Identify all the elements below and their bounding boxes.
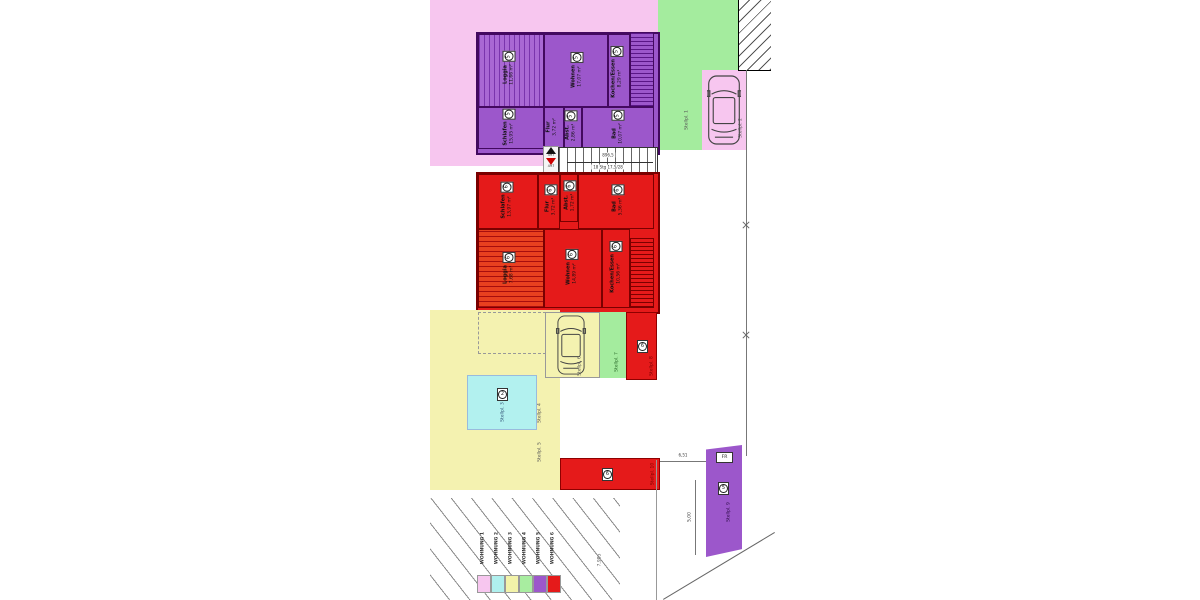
unit-number-badge: 5 xyxy=(611,46,624,57)
unit-number-badge: 5 xyxy=(565,111,578,122)
legend-label-5: WOHNUNG 5 xyxy=(537,532,542,564)
level-down-value: 497 xyxy=(544,165,558,169)
unit-number-badge: 5 xyxy=(612,110,625,121)
stair-steps-label: 18 Stg 17,5/28 xyxy=(591,165,625,170)
label-w5-schlafen: Schlafen15,95 m² 5 xyxy=(503,108,516,145)
car-icon xyxy=(553,314,589,376)
staircase: 896,5 18 Stg 17,5/28 xyxy=(558,147,658,174)
car-icon xyxy=(707,73,741,147)
unit-number-badge: 6 xyxy=(503,252,516,263)
fr-marker: FR xyxy=(716,452,733,463)
label-w5-bad: Bad10,07 m² 5 xyxy=(612,110,625,144)
label-w5-abst: Abst.2,86 m² 5 xyxy=(565,111,578,142)
legend-swatch-5 xyxy=(533,575,547,593)
unit-number-badge: 5 xyxy=(503,108,516,119)
roof-outline-dashed xyxy=(478,312,546,354)
dimension-value-h: 6,51 xyxy=(679,453,688,458)
stall-9-label: Stellpl. 9 xyxy=(727,502,732,522)
label-w6-kochen: Kochen/Essen10,56 m² 6 xyxy=(610,241,623,293)
boundary-tick xyxy=(740,219,753,232)
boundary-line-bottom-center xyxy=(656,460,657,600)
unit-number-badge: 6 xyxy=(602,468,613,481)
legend-swatch-6 xyxy=(547,575,561,593)
stall-8-label: Stellpl. 8 xyxy=(650,356,655,376)
room-w5-balkon xyxy=(630,32,654,107)
legend-label-6: WOHNUNG 6 xyxy=(551,532,556,564)
room-w6-balkon xyxy=(630,238,654,308)
unit-number-badge: 6 xyxy=(566,249,579,260)
label-w5-wohnen: Wohnen17,07 m² 5 xyxy=(571,52,584,88)
label-w6-abst: Abst.1,72 m² 6 xyxy=(564,181,577,212)
stall-2-label: Stellpl. 2 xyxy=(739,118,744,138)
label-w5-loggia: Loggia11,66 m² 5 xyxy=(503,51,516,85)
stall-1-label: Stellpl. 1 xyxy=(685,110,690,130)
ground-green-column xyxy=(658,70,702,150)
label-w6-loggia: Loggia7,68 m² 6 xyxy=(503,252,516,284)
unit-number-badge: 5 xyxy=(718,482,729,495)
label-w6-flur: Flur3,72 m² 6 xyxy=(545,185,558,216)
boundary-line-right xyxy=(746,70,747,456)
label-w6-wohnen: Wohnen14,89 m² 6 xyxy=(566,249,579,285)
legend-swatch-2 xyxy=(491,575,505,593)
stair-dimension-line xyxy=(567,162,653,163)
unit-number-badge: 6 xyxy=(612,185,625,196)
legend-swatch-3 xyxy=(505,575,519,593)
legend-label-1: WOHNUNG 1 xyxy=(481,532,486,564)
label-w5-flur: Flur3,72 m² xyxy=(547,118,558,136)
stall-3-label: Stellpl. 3 xyxy=(501,402,506,422)
unit-number-badge: 6 xyxy=(610,241,623,252)
stall-10-label: Stellpl. 10 xyxy=(651,463,656,486)
legend-label-4: WOHNUNG 4 xyxy=(523,532,528,564)
site-plan-canvas: Stellpl. 1 Stellpl. 2 Loggia11,66 m² 5 W… xyxy=(0,0,1200,600)
legend-swatch-1 xyxy=(477,575,491,593)
unit-number-badge: 6 xyxy=(637,340,648,353)
unit-number-badge: 6 xyxy=(501,181,514,192)
unit-number-badge: 5 xyxy=(571,52,584,63)
legend-swatch-4 xyxy=(519,575,533,593)
stall-6-label: Stellpl. 6 xyxy=(578,356,583,376)
parking-stall-7-green xyxy=(600,312,626,378)
unit-number-badge: 6 xyxy=(564,181,577,192)
stall-4-label: Stellpl. 4 xyxy=(538,403,543,423)
dimension-line-h xyxy=(660,461,706,462)
legend-label-2: WOHNUNG 2 xyxy=(495,532,500,564)
boundary-tick xyxy=(740,329,753,342)
unit-number-badge: 2 xyxy=(497,388,508,401)
label-w5-kochen: Kochen/Essen8,29 m² 5 xyxy=(611,46,624,98)
existing-building-hatch xyxy=(738,0,771,71)
dimension-line-v xyxy=(695,480,696,555)
dimension-value-v: 5,00 xyxy=(688,512,693,522)
unit-number-badge: 5 xyxy=(503,51,516,62)
unit-number-badge: 6 xyxy=(545,185,558,196)
legend-label-3: WOHNUNG 3 xyxy=(509,532,514,564)
stall-5-label: Stellpl. 5 xyxy=(538,442,543,462)
label-w6-schlafen: Schlafen13,97 m² 6 xyxy=(501,181,514,218)
ground-green-top xyxy=(658,0,746,70)
label-w6-bad: Bad5,36 m² 6 xyxy=(612,185,625,216)
stair-dimension-value: 896,5 xyxy=(600,153,615,158)
stall-7-label: Stellpl. 7 xyxy=(615,352,620,372)
